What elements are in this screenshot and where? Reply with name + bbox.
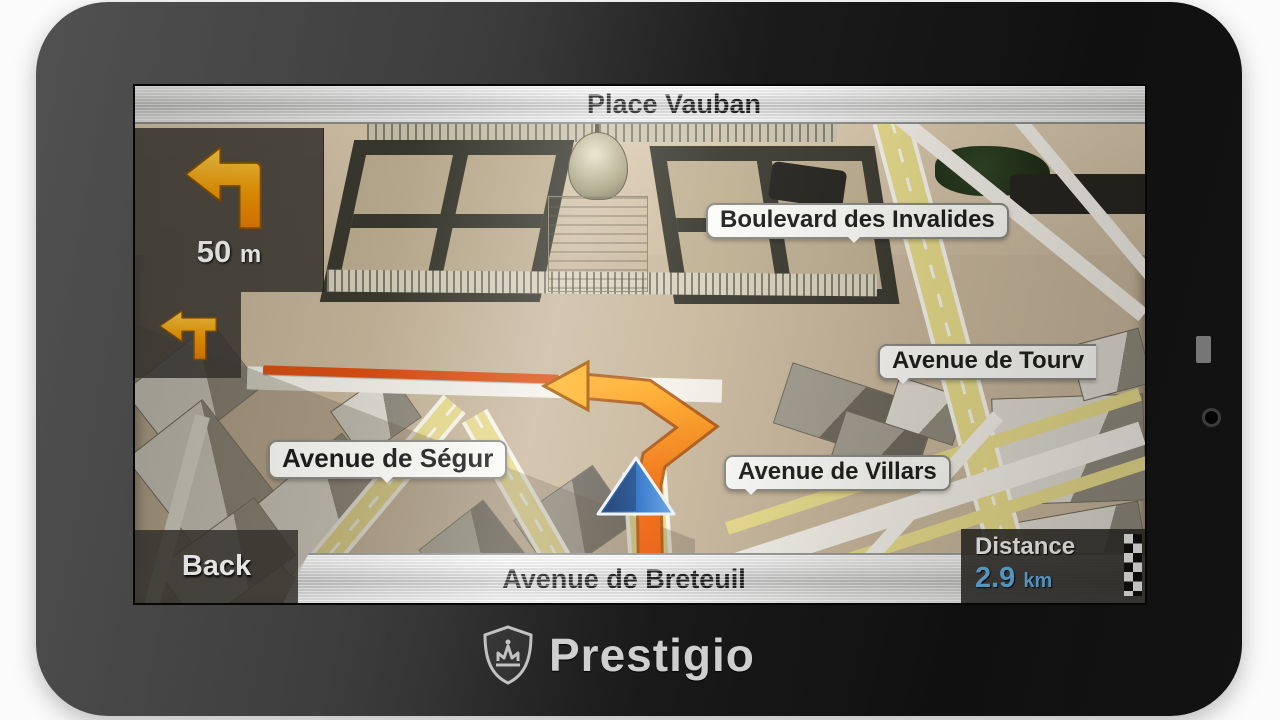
brand-logo: Prestigio xyxy=(481,620,755,690)
next-maneuver-panel[interactable] xyxy=(135,292,241,378)
brand-name: Prestigio xyxy=(549,628,755,682)
distance-panel[interactable]: Distance 2.9km xyxy=(961,529,1145,603)
invalides-dome-icon xyxy=(542,116,652,292)
street-label-bubble: Avenue de Tourv xyxy=(878,344,1096,380)
distance-label: Distance xyxy=(975,533,1075,561)
maneuver-distance: 50 m xyxy=(197,234,261,270)
street-label-bubble: Avenue de Ségur xyxy=(268,440,507,479)
reset-pinhole xyxy=(1202,408,1221,427)
navigation-screen[interactable]: Boulevard des Invalides Avenue de Tourv … xyxy=(133,84,1147,605)
then-turn-left-icon xyxy=(155,306,221,364)
turn-left-arrow-icon xyxy=(173,136,285,232)
current-position-arrow-icon xyxy=(590,454,682,520)
maneuver-panel[interactable]: 50 m xyxy=(135,128,324,292)
side-card-slot xyxy=(1196,336,1211,363)
back-button[interactable]: Back xyxy=(135,530,298,603)
next-street-name: Place Vauban xyxy=(587,89,761,120)
street-label-bubble: Boulevard des Invalides xyxy=(706,203,1009,239)
crown-shield-icon xyxy=(481,625,535,685)
distance-value: 2.9km xyxy=(975,562,1052,595)
route-turn-arrowhead xyxy=(544,362,588,410)
checkered-flag-icon xyxy=(1124,534,1142,596)
current-street-name: Avenue de Breteuil xyxy=(502,564,746,595)
next-street-bar[interactable]: Place Vauban xyxy=(135,86,1145,124)
gps-device-frame: Boulevard des Invalides Avenue de Tourv … xyxy=(36,2,1242,716)
street-label-bubble: Avenue de Villars xyxy=(724,455,951,491)
